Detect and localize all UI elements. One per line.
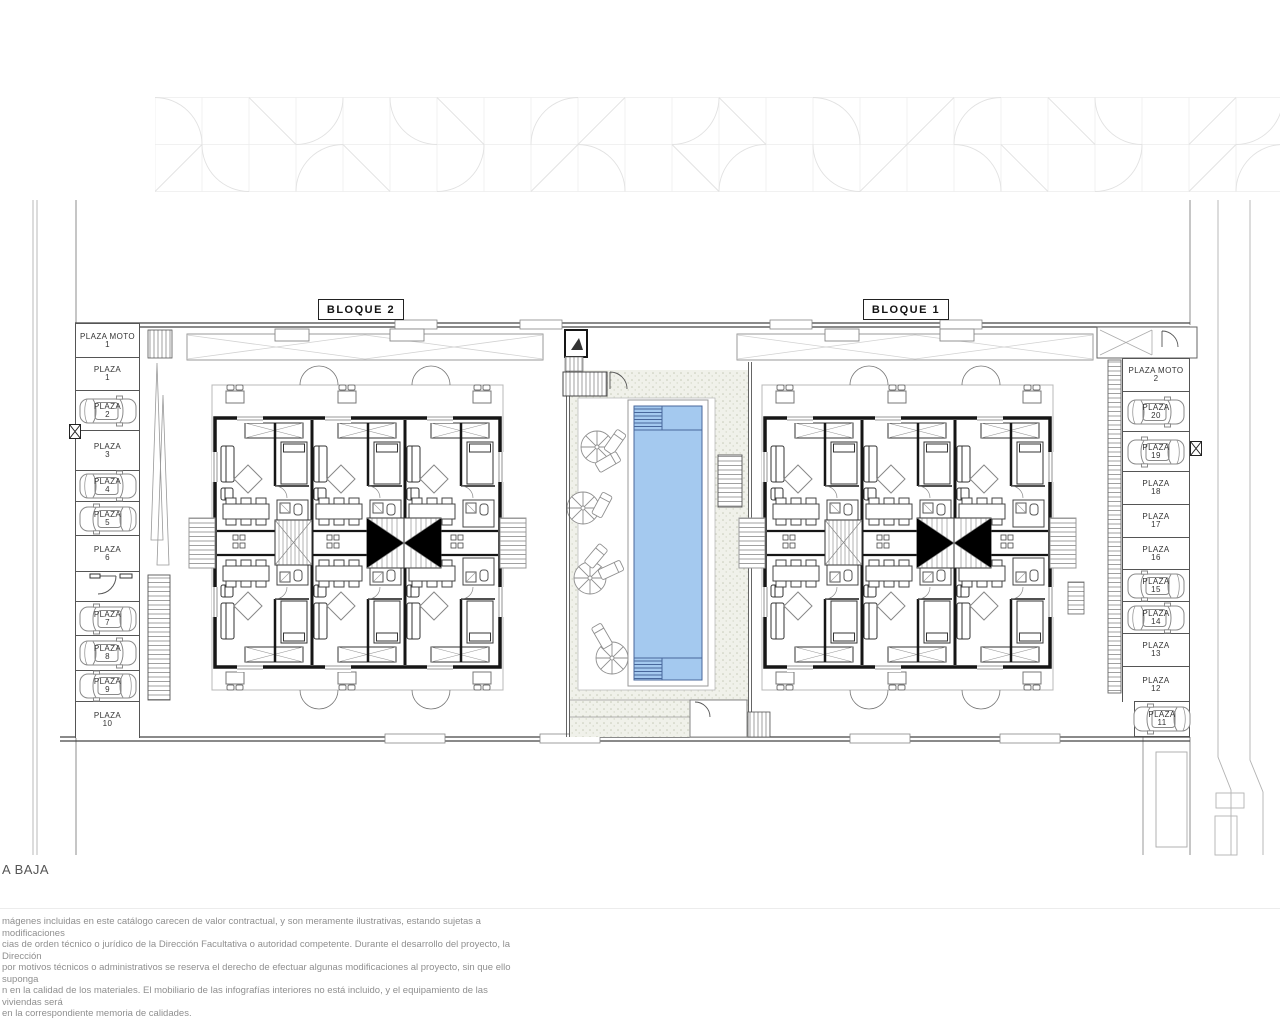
parking-space-number: 1: [76, 341, 139, 349]
parking-space-label: PLAZA: [1142, 512, 1169, 521]
parking-space-label: PLAZA: [94, 545, 121, 554]
parking-space-label: PLAZA: [1142, 641, 1169, 650]
parking-space-18: PLAZA18: [1123, 472, 1189, 505]
parking-space-label: PLAZA MOTO: [1129, 366, 1184, 375]
car-icon: [78, 395, 138, 427]
parking-space-11: PLAZA11: [1135, 702, 1189, 736]
parking-space-4: PLAZA4: [76, 471, 139, 502]
parking-space-moto-2: PLAZA MOTO2: [1123, 359, 1189, 392]
parking-space-15: PLAZA15: [1123, 570, 1189, 602]
parking-space-11-slot: PLAZA11: [1134, 701, 1190, 737]
car-icon: [1126, 602, 1186, 634]
section-divider: [0, 908, 1280, 909]
car-icon: [78, 637, 138, 669]
legal-disclaimer: mágenes incluidas en este catálogo carec…: [2, 916, 522, 1020]
parking-space-label: PLAZA MOTO: [80, 332, 135, 341]
parking-space-9: PLAZA9: [76, 671, 139, 702]
car-icon: [1126, 436, 1186, 468]
parking-space-3: PLAZA3: [76, 431, 139, 471]
disclaimer-line: mágenes incluidas en este catálogo carec…: [2, 916, 522, 939]
parking-space-20: PLAZA20: [1123, 392, 1189, 432]
parking-space-19: PLAZA19: [1123, 432, 1189, 472]
car-icon: [1126, 396, 1186, 428]
block-2-plan: [187, 329, 543, 709]
parking-space-label: PLAZA: [94, 711, 121, 720]
parking-space-5: PLAZA5: [76, 502, 139, 536]
parking-space-10: PLAZA10: [76, 702, 139, 738]
block-2-label-text: BLOQUE 2: [327, 304, 395, 316]
parking-space-7: PLAZA7: [76, 602, 139, 636]
disclaimer-line: por motivos técnicos o administrativos s…: [2, 962, 522, 985]
wall-joint-marker-right: [1190, 441, 1202, 456]
parking-space-12: PLAZA12: [1123, 667, 1189, 702]
parking-space-6: PLAZA6: [76, 536, 139, 572]
block-1-plan: [737, 329, 1093, 709]
wall-joint-marker-left: [69, 424, 81, 439]
parking-space-label: PLAZA: [94, 442, 121, 451]
disclaimer-line: n en la calidad de los materiales. El mo…: [2, 985, 522, 1008]
pool-water: [634, 406, 702, 680]
disclaimer-line: en la correspondiente memoria de calidad…: [2, 1008, 522, 1020]
block-1-label: BLOQUE 1: [863, 299, 949, 320]
parking-space-number: 10: [76, 720, 139, 728]
parking-space-label: PLAZA: [94, 365, 121, 374]
parking-space-14: PLAZA14: [1123, 602, 1189, 634]
parking-space-8: PLAZA8: [76, 636, 139, 671]
parking-space-label: PLAZA: [1142, 479, 1169, 488]
parking-space-16: PLAZA16: [1123, 538, 1189, 570]
parking-aisle-gap: [76, 572, 139, 602]
car-icon: [78, 603, 138, 635]
car-icon: [1132, 703, 1192, 735]
parking-space-number: 3: [76, 451, 139, 459]
disclaimer-line: cias de orden técnico o jurídico de la D…: [2, 939, 522, 962]
parking-space-number: 2: [1123, 375, 1189, 383]
aisle-door-arc: [76, 572, 141, 601]
parking-space-label: PLAZA: [1142, 676, 1169, 685]
parking-space-17: PLAZA17: [1123, 505, 1189, 538]
parking-space-number: 6: [76, 554, 139, 562]
parking-space-number: 1: [76, 374, 139, 382]
floor-plan-title: A BAJA: [2, 862, 49, 877]
parking-space-number: 17: [1123, 521, 1189, 529]
parking-space-number: 12: [1123, 685, 1189, 693]
car-icon: [78, 670, 138, 702]
car-icon: [78, 470, 138, 502]
parking-space-number: 18: [1123, 488, 1189, 496]
parking-space-13: PLAZA13: [1123, 634, 1189, 667]
parking-space-1: PLAZA1: [76, 358, 139, 391]
block-2-label: BLOQUE 2: [318, 299, 404, 320]
block-1-label-text: BLOQUE 1: [872, 304, 940, 316]
parking-space-number: 16: [1123, 554, 1189, 562]
floor-plan-drawing: [0, 0, 1280, 1024]
parking-column-right: PLAZA MOTO2 PLAZA20 PLAZA19 PLAZA18 PLAZ…: [1122, 358, 1190, 702]
parking-space-moto-1: PLAZA MOTO1: [76, 324, 139, 358]
parking-space-number: 13: [1123, 650, 1189, 658]
car-icon: [1126, 570, 1186, 602]
parking-column-left: PLAZA MOTO1 PLAZA1 PLAZA2 PLAZA3 PLAZA4 …: [75, 323, 140, 738]
parking-space-2: PLAZA2: [76, 391, 139, 431]
parking-space-label: PLAZA: [1142, 545, 1169, 554]
car-icon: [78, 503, 138, 535]
